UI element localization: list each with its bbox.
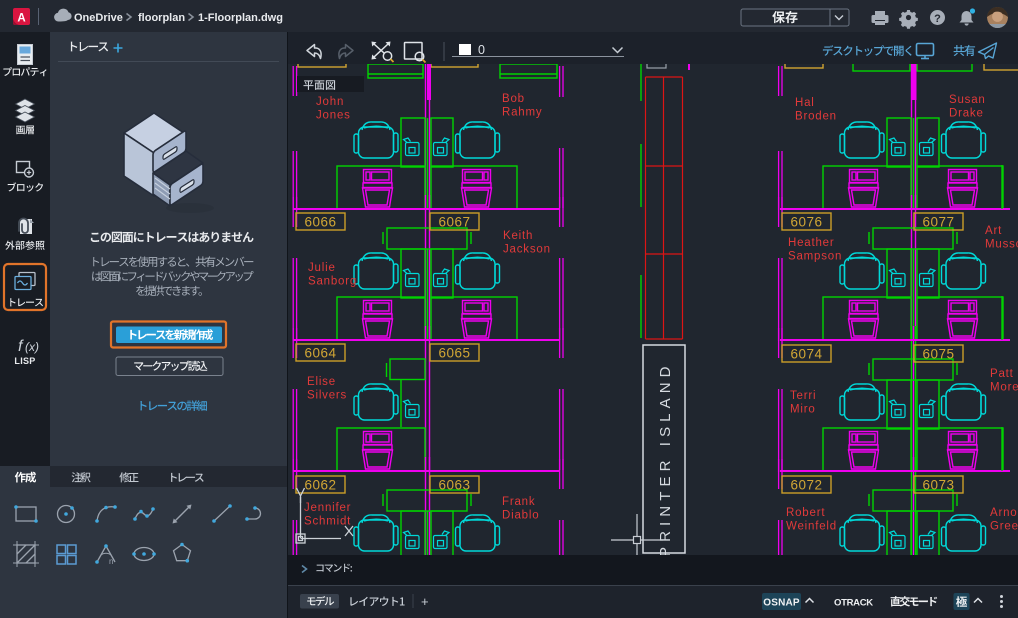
svg-text:6077: 6077 xyxy=(922,215,954,230)
svg-text:FrankDiablo: FrankDiablo xyxy=(502,496,539,522)
svg-text:OneDrive: OneDrive xyxy=(74,12,123,24)
svg-text:JenniferSchmidt: JenniferSchmidt xyxy=(304,502,351,528)
svg-text:6067: 6067 xyxy=(438,215,470,230)
svg-text:SusanDrake: SusanDrake xyxy=(949,94,986,120)
svg-text:floorplan: floorplan xyxy=(138,12,185,24)
svg-text:1-Floorplan.dwg: 1-Floorplan.dwg xyxy=(198,12,283,24)
svg-text:6066: 6066 xyxy=(304,215,336,230)
svg-text:6076: 6076 xyxy=(790,215,822,230)
svg-text:LISP: LISP xyxy=(14,356,35,366)
svg-text:6062: 6062 xyxy=(304,478,336,493)
svg-text:?: ? xyxy=(934,13,941,25)
svg-text:OSNAP: OSNAP xyxy=(763,598,800,609)
svg-text:6072: 6072 xyxy=(790,478,822,493)
svg-text:OTRACK: OTRACK xyxy=(834,598,873,609)
svg-text:(x): (x) xyxy=(25,340,39,354)
svg-text:ArnoldGreen: ArnoldGreen xyxy=(990,507,1018,533)
svg-text:6064: 6064 xyxy=(304,346,336,361)
svg-text:n: n xyxy=(109,557,113,566)
svg-text:6073: 6073 xyxy=(922,478,954,493)
svg-text:+: + xyxy=(421,594,429,609)
svg-text:A: A xyxy=(17,13,25,25)
svg-text:6075: 6075 xyxy=(922,347,954,362)
svg-text:HeatherSampson: HeatherSampson xyxy=(788,237,842,263)
svg-text:PRINTER ISLAND: PRINTER ISLAND xyxy=(657,361,674,557)
svg-text:6065: 6065 xyxy=(438,346,470,361)
svg-text:6063: 6063 xyxy=(438,478,470,493)
svg-text:6074: 6074 xyxy=(790,347,822,362)
svg-text:0: 0 xyxy=(478,43,485,57)
svg-text:TerriMiro: TerriMiro xyxy=(790,390,816,416)
